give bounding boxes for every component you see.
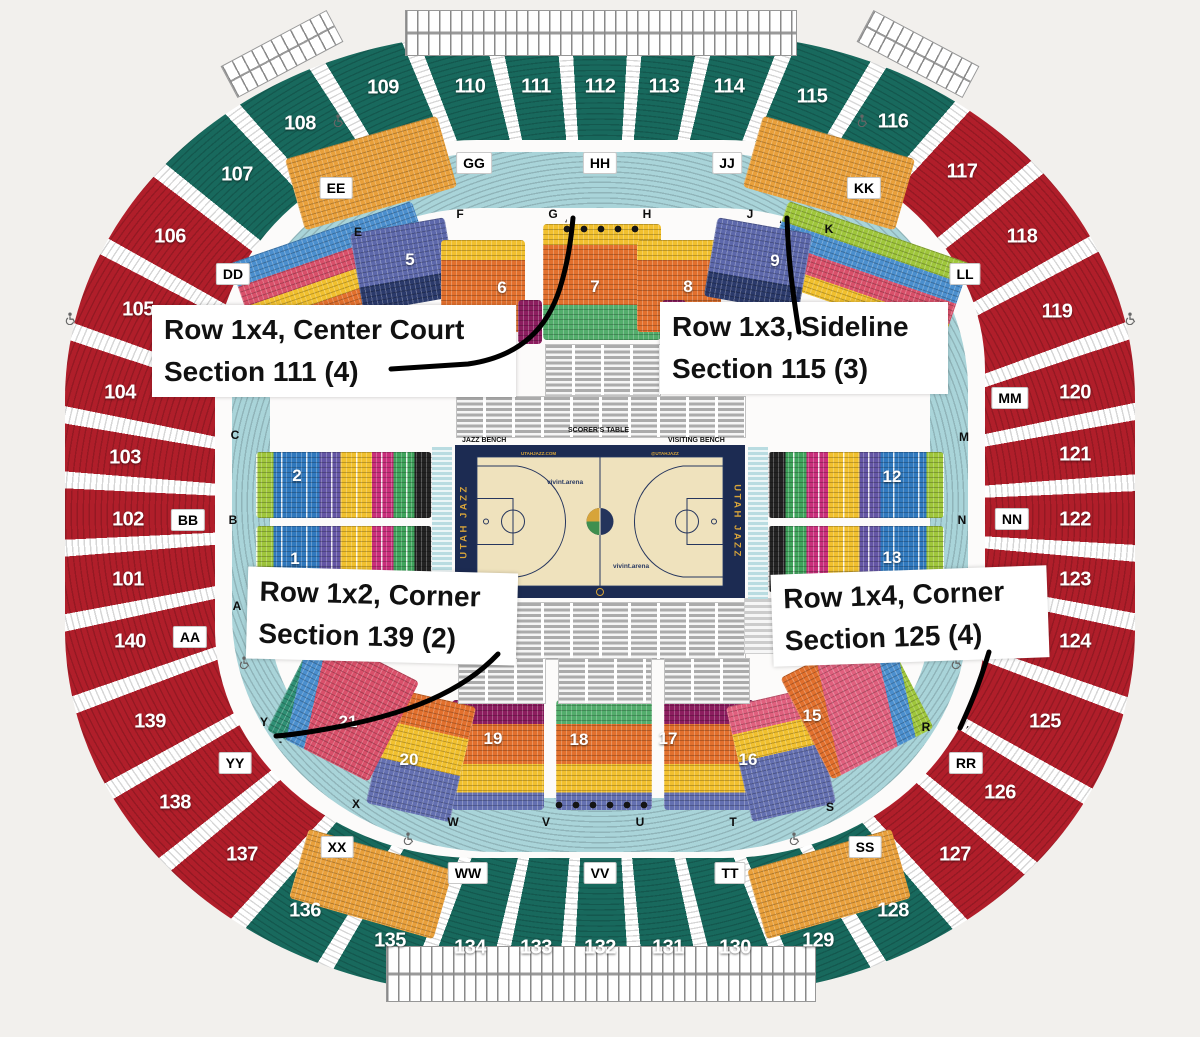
section-label-124[interactable]: 124 [1059, 631, 1091, 654]
section-label-110[interactable]: 110 [455, 76, 486, 99]
section-label-134[interactable]: 134 [454, 937, 486, 960]
section-label-128[interactable]: 128 [877, 900, 909, 923]
terrace-section-GG[interactable]: GG [456, 152, 492, 174]
wheelchair-icon [788, 832, 800, 845]
section-label-127[interactable]: 127 [939, 844, 971, 867]
section-label-126[interactable]: 126 [984, 782, 1016, 805]
inner-section-label-20[interactable]: 20 [400, 750, 419, 770]
inner-section-label-18[interactable]: 18 [570, 730, 589, 750]
court-handle-text: @UTAHJAZZ [651, 451, 679, 456]
wheelchair-icon [856, 114, 868, 127]
terrace-section-VV[interactable]: VV [584, 862, 617, 884]
inner-section-label-9[interactable]: 9 [770, 251, 779, 271]
terrace-section-JJ[interactable]: JJ [712, 152, 742, 174]
inner-section-label-21[interactable]: 21 [339, 712, 358, 732]
terrace-section-TT[interactable]: TT [714, 862, 745, 884]
inner-section-label-8[interactable]: 8 [683, 277, 692, 297]
arena-logo-top: vivint.arena [547, 479, 584, 486]
section-label-109[interactable]: 109 [367, 77, 399, 100]
terrace-section-WW[interactable]: WW [448, 862, 488, 884]
section-label-130[interactable]: 130 [719, 937, 751, 960]
suite-boxes-top[interactable] [405, 10, 797, 56]
callout-line1: Row 1x2, Corner [259, 571, 506, 619]
camera-row-bottom-icon [552, 798, 652, 813]
callout-line1: Row 1x4, Center Court [164, 309, 504, 351]
callout-center-court: Row 1x4, Center Court Section 111 (4) [152, 305, 516, 397]
wheelchair-icon [64, 312, 76, 325]
row-letter-Y: Y [260, 715, 268, 729]
wheelchair-icon [332, 114, 344, 127]
section-label-120[interactable]: 120 [1059, 382, 1091, 405]
callout-sideline: Row 1x3, Sideline Section 115 (3) [660, 302, 948, 394]
section-label-139[interactable]: 139 [134, 711, 166, 734]
team-name-left: UTAH JAZZ [459, 484, 470, 559]
terrace-section-LL[interactable]: LL [949, 263, 980, 285]
section-label-115[interactable]: 115 [797, 86, 828, 109]
row-letter-C: C [231, 428, 240, 442]
row-letter-T: T [729, 815, 736, 829]
section-label-133[interactable]: 133 [520, 937, 552, 960]
inner-section-label-13[interactable]: 13 [883, 548, 902, 568]
inner-section-label-15[interactable]: 15 [803, 706, 822, 726]
court-apron-right [748, 447, 768, 599]
terrace-section-EE[interactable]: EE [320, 177, 353, 199]
row-letter-M: M [959, 430, 969, 444]
section-label-125[interactable]: 125 [1029, 711, 1061, 734]
section-label-135[interactable]: 135 [374, 930, 406, 953]
section-label-132[interactable]: 132 [584, 937, 616, 960]
section-label-121[interactable]: 121 [1059, 444, 1091, 467]
inner-section-label-1[interactable]: 1 [290, 549, 299, 569]
section-label-114[interactable]: 114 [714, 76, 745, 99]
callout-line2: Section 139 (2) [258, 613, 505, 661]
courtside-left-block[interactable] [518, 300, 542, 344]
row-letter-S: S [826, 800, 834, 814]
section-label-138[interactable]: 138 [159, 792, 191, 815]
row-letter-K: K [825, 222, 834, 236]
row-letter-U: U [636, 815, 645, 829]
section-label-107[interactable]: 107 [221, 164, 253, 187]
row-letter-B: B [229, 513, 238, 527]
terrace-section-HH[interactable]: HH [583, 152, 617, 174]
arena-logo-bottom: vivint.arena [613, 563, 650, 570]
row-letter-X: X [352, 797, 360, 811]
row-letter-G: G [548, 207, 557, 221]
center-court-logo [587, 508, 614, 535]
callout-corner-139: Row 1x2, Corner Section 139 (2) [246, 566, 518, 665]
terrace-section-YY[interactable]: YY [219, 752, 252, 774]
section-label-131[interactable]: 131 [652, 937, 684, 960]
section-label-101[interactable]: 101 [112, 569, 144, 592]
section-label-140[interactable]: 140 [114, 631, 146, 654]
bench-visitor-label: VISITING BENCH [668, 437, 725, 444]
section-label-137[interactable]: 137 [226, 844, 258, 867]
section-label-116[interactable]: 116 [878, 111, 909, 134]
terrace-section-XX[interactable]: XX [321, 836, 354, 858]
inner-section-label-17[interactable]: 17 [659, 729, 678, 749]
row-letter-V: V [542, 815, 550, 829]
wheelchair-icon [402, 832, 414, 845]
team-name-right: UTAH JAZZ [732, 484, 743, 559]
callout-line1: Row 1x4, Corner [783, 570, 1036, 621]
section-label-106[interactable]: 106 [154, 226, 186, 249]
row-letter-N: N [958, 513, 967, 527]
row-letter-W: W [447, 815, 458, 829]
section-label-129[interactable]: 129 [802, 930, 834, 953]
terrace-section-NN[interactable]: NN [995, 508, 1029, 530]
floor-seats-lower-right[interactable] [664, 658, 750, 704]
section-label-118[interactable]: 118 [1007, 226, 1038, 249]
section-label-122[interactable]: 122 [1059, 509, 1091, 532]
section-label-112[interactable]: 112 [585, 76, 616, 99]
section-label-103[interactable]: 103 [109, 447, 141, 470]
row-letter-F: F [456, 207, 463, 221]
section-label-123[interactable]: 123 [1059, 569, 1091, 592]
section-label-105[interactable]: 105 [122, 299, 154, 322]
section-label-113[interactable]: 113 [649, 76, 680, 99]
inner-section-label-16[interactable]: 16 [739, 750, 758, 770]
section-label-117[interactable]: 117 [947, 161, 978, 184]
section-9-block[interactable] [704, 217, 812, 312]
terrace-section-DD[interactable]: DD [216, 263, 250, 285]
scorers-table-label: SCORER'S TABLE [568, 427, 629, 434]
section-label-104[interactable]: 104 [104, 382, 136, 405]
section-2-block[interactable] [256, 452, 432, 518]
callout-corner-125: Row 1x4, Corner Section 125 (4) [770, 565, 1049, 667]
bench-home-label: JAZZ BENCH [462, 437, 506, 444]
row-letter-A: A [233, 599, 242, 613]
inner-section-label-7[interactable]: 7 [590, 277, 599, 297]
callout-line2: Section 111 (4) [164, 351, 504, 393]
callout-line1: Row 1x3, Sideline [672, 306, 936, 348]
inner-section-label-19[interactable]: 19 [484, 729, 503, 749]
inner-section-label-12[interactable]: 12 [883, 467, 902, 487]
wheelchair-icon [1124, 312, 1136, 325]
row-letter-R: R [922, 720, 931, 734]
callout-line2: Section 125 (4) [784, 612, 1037, 663]
terrace-section-MM[interactable]: MM [991, 387, 1028, 409]
section-label-119[interactable]: 119 [1042, 301, 1073, 324]
section-label-136[interactable]: 136 [289, 900, 321, 923]
inner-section-label-6[interactable]: 6 [497, 278, 506, 298]
row-letter-J: J [747, 207, 754, 221]
inner-section-label-2[interactable]: 2 [292, 466, 301, 486]
section-12-block[interactable] [768, 452, 944, 518]
camera-row-top-icon [560, 222, 644, 237]
terrace-section-AA[interactable]: AA [173, 626, 207, 648]
court-url-text: UTAHJAZZ.COM [521, 451, 556, 456]
section-label-108[interactable]: 108 [284, 113, 316, 136]
row-letter-H: H [643, 207, 652, 221]
terrace-section-SS[interactable]: SS [849, 836, 882, 858]
section-label-102[interactable]: 102 [112, 509, 144, 532]
inner-section-label-5[interactable]: 5 [405, 250, 414, 270]
terrace-section-BB[interactable]: BB [171, 509, 205, 531]
terrace-section-KK[interactable]: KK [847, 177, 881, 199]
terrace-section-RR[interactable]: RR [949, 752, 983, 774]
section-18-block[interactable] [556, 700, 652, 810]
callout-line2: Section 115 (3) [672, 348, 936, 390]
floor-seats-top-center[interactable] [545, 344, 661, 396]
arena-seating-map: JAZZ BENCH SCORER'S TABLE VISITING BENCH [0, 0, 1200, 1037]
section-label-111[interactable]: 111 [521, 76, 551, 99]
row-letter-E: E [354, 225, 362, 239]
floor-seats-lower-center[interactable] [558, 658, 652, 704]
